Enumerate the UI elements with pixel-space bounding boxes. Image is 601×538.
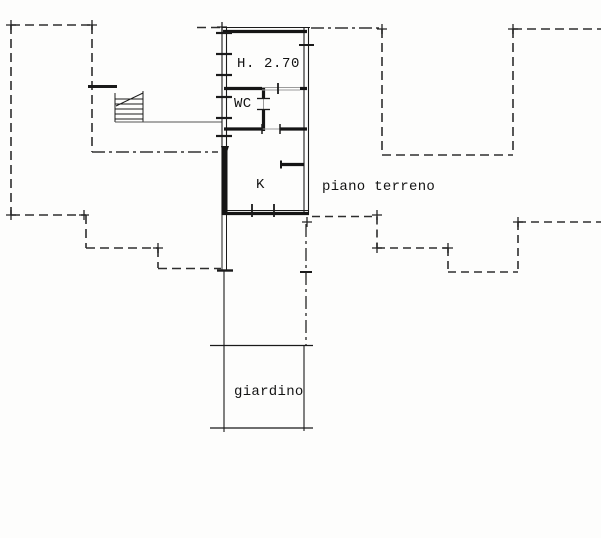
room-height-label: H. 2.70 <box>237 56 300 72</box>
floor-plan-drawing: H. 2.70 WC K piano terreno giardino <box>0 0 601 538</box>
apartment-openings <box>262 88 300 130</box>
boundary-right-top-dashed <box>382 29 601 155</box>
wc-label: WC <box>234 96 251 112</box>
staircase <box>88 87 222 123</box>
boundary-left-dashed <box>11 25 221 269</box>
floor-label: piano terreno <box>322 179 435 195</box>
opening-tick-marks <box>252 83 280 217</box>
boundary-right-bottom-dashed <box>312 217 601 273</box>
survey-cross-ticks <box>6 20 523 253</box>
garden-label: giardino <box>234 384 304 400</box>
kitchen-label: K <box>256 177 265 193</box>
floor-plan-canvas: H. 2.70 WC K piano terreno giardino <box>0 0 601 538</box>
